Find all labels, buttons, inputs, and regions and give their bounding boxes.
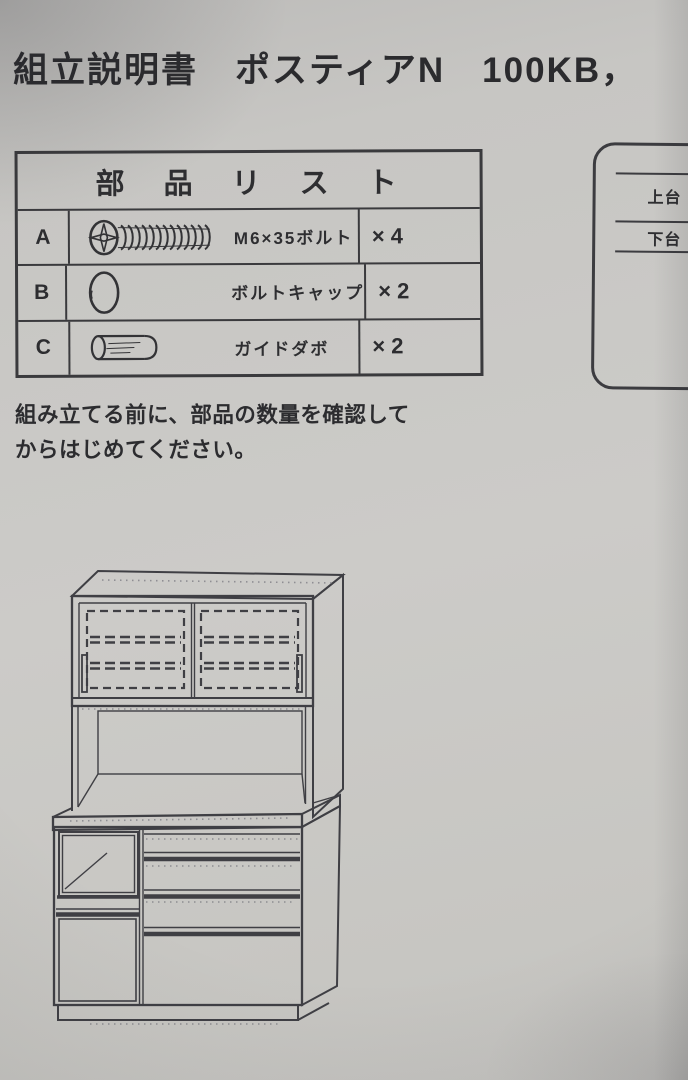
part-name: ガイドダボ — [234, 334, 329, 359]
guide-dowel-icon — [88, 331, 234, 364]
lower-cabinet — [54, 806, 340, 1005]
divider-line — [615, 250, 688, 254]
lower-right-side — [302, 806, 340, 1005]
glass-compartment — [57, 832, 140, 897]
part-qty: ×2 — [360, 320, 480, 374]
m6-bolt-icon — [88, 217, 234, 258]
parts-row-a: A — [18, 209, 480, 266]
counter-top — [53, 795, 340, 830]
lower-left-door — [56, 909, 140, 1001]
upper-unit-label: 上台 — [648, 184, 682, 208]
instruction-sheet-page: 組立説明書 ポスティアN 100KB， 部 品 リ ス ト A — [0, 0, 688, 1080]
cabinet-assembly-line-drawing — [40, 558, 370, 1033]
pre-assembly-note: 組み立てる前に、部品の数量を確認して からはじめてください。 — [15, 398, 495, 468]
sliding-door-left — [82, 611, 184, 692]
part-qty: ×2 — [366, 264, 480, 318]
note-line-1: 組み立てる前に、部品の数量を確認して — [15, 398, 495, 433]
upper-front-frame — [72, 596, 313, 706]
drawer-stack — [144, 834, 300, 934]
kickplate — [58, 1003, 329, 1020]
document-title: 組立説明書 ポスティアN 100KB， — [13, 48, 688, 94]
upper-top-face — [72, 571, 343, 599]
part-id: A — [18, 211, 70, 265]
cabinet-figure — [40, 558, 370, 1038]
parts-list-header: 部 品 リ ス ト — [18, 152, 480, 211]
part-id: C — [18, 321, 70, 375]
parts-list-table: 部 品 リ ス ト A — [15, 149, 484, 378]
glass-reflection-line — [65, 853, 107, 889]
part-id: B — [18, 266, 67, 320]
part-name: M6×35ボルト — [234, 224, 354, 250]
lower-unit-label: 下台 — [647, 226, 681, 250]
divider-line — [615, 220, 688, 224]
side-view-diagram: 上台 下台 — [591, 142, 688, 391]
note-line-2: からはじめてください。 — [15, 433, 495, 468]
door-handle-right — [297, 655, 302, 692]
hutch-back-panel — [98, 711, 302, 774]
part-qty: ×4 — [360, 209, 480, 263]
sliding-door-right — [201, 611, 302, 692]
door-handle-left — [82, 655, 87, 692]
hutch-open-shelf — [72, 706, 306, 811]
parts-row-b: B ボルトキャップ ×2 — [18, 264, 480, 321]
divider-line — [616, 172, 688, 176]
photocopy-speckle-lines — [70, 580, 335, 1024]
part-name: ボルトキャップ — [231, 279, 364, 305]
bolt-cap-icon — [85, 268, 231, 317]
upper-right-side — [313, 575, 343, 817]
parts-row-c: C ガイドダボ ×2 — [18, 320, 480, 375]
